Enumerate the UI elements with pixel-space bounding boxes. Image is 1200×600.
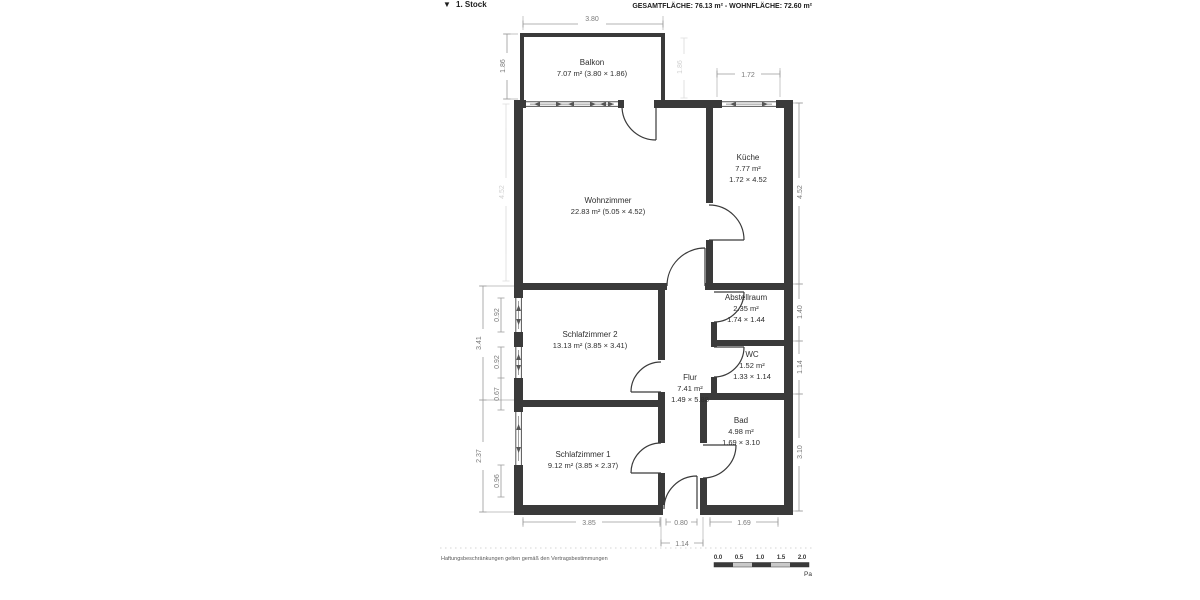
floor-title: 1. Stock: [456, 0, 487, 9]
room-flur: Flur 7.41 m² 1.49 × 5.88: [671, 373, 709, 404]
page-hint: Pa: [804, 571, 812, 578]
door-kueche: [709, 205, 744, 240]
scale-seg-1: [714, 563, 733, 568]
room-abstellraum-dims: 1.74 × 1.44: [727, 315, 765, 324]
room-wc-area: 1.52 m²: [739, 361, 765, 370]
wall-balkon-top: [520, 33, 665, 37]
wall-bottom-right: [700, 505, 793, 515]
window-kueche: [722, 102, 776, 107]
dimensions: 3.80 1.72 1.86 1.86 4.52 3.41 2.37 0.92 …: [476, 16, 804, 548]
dim-left-sz2-outer: 3.41: [476, 336, 483, 350]
wall-balkon-right: [661, 33, 665, 100]
wall-balkon-left: [520, 33, 524, 100]
room-sz1-name: Schlafzimmer 1: [555, 450, 611, 459]
disclaimer-text: Haftungsbeschränkungen gelten gemäß den …: [441, 556, 608, 562]
room-sz2-name: Schlafzimmer 2: [562, 330, 618, 339]
wall-flur-left-mid: [658, 392, 665, 443]
dim-bottom-sz1: 3.85: [582, 520, 596, 527]
wall-sz-divider: [514, 400, 658, 407]
room-schlafzimmer2: Schlafzimmer 2 13.13 m² (3.85 × 3.41): [553, 330, 628, 350]
scale-seg-4: [771, 563, 790, 568]
dim-left-sz2-pier: 0.67: [494, 387, 501, 401]
wall-mid-horizontal-left: [514, 283, 667, 290]
room-wc: WC 1.52 m² 1.33 × 1.14: [733, 350, 771, 381]
room-wohnzimmer-name: Wohnzimmer: [585, 196, 632, 205]
room-wc-name: WC: [745, 350, 759, 359]
room-kueche-area: 7.77 m²: [735, 164, 761, 173]
doors: [622, 106, 744, 509]
room-balkon-name: Balkon: [580, 58, 604, 67]
dim-bottom-bad: 1.69: [737, 520, 751, 527]
door-flur-wohnzimmer: [667, 248, 705, 286]
room-kueche-dims: 1.72 × 4.52: [729, 175, 767, 184]
room-abstellraum: Abstellraum 2.35 m² 1.74 × 1.44: [725, 293, 768, 324]
window-sz1: [516, 412, 522, 465]
dim-right-balkon: 1.86: [677, 60, 684, 74]
wall-mid-horizontal-right: [705, 283, 793, 290]
dim-left-sz1-outer: 2.37: [476, 449, 483, 463]
room-wohnzimmer: Wohnzimmer 22.83 m² (5.05 × 4.52): [571, 196, 646, 216]
wall-top-post: [618, 100, 624, 108]
wall-top-left-corner: [514, 100, 526, 108]
header: ▼ 1. Stock GESAMTFLÄCHE: 76.13 m² - WOHN…: [443, 0, 813, 10]
dim-right-wc: 1.14: [797, 360, 804, 374]
dim-left-sz2-win1: 0.92: [494, 308, 501, 322]
wall-bad-left-upper: [700, 400, 707, 443]
dim-top-balkon: 3.80: [585, 16, 599, 23]
wall-flur-left-lower: [658, 473, 665, 505]
scale-seg-2: [733, 563, 752, 568]
wall-abst-wc-divider: [711, 340, 793, 346]
room-abstellraum-name: Abstellraum: [725, 293, 768, 302]
scale-label-1: 0.5: [735, 555, 744, 561]
scale-label-2: 1.0: [756, 555, 765, 561]
room-schlafzimmer1: Schlafzimmer 1 9.12 m² (3.85 × 2.37): [548, 450, 619, 470]
dim-bottom-door: 0.80: [674, 520, 688, 527]
wall-flur-left-upper: [658, 290, 665, 360]
room-bad-dims: 1.69 × 3.10: [722, 438, 760, 447]
area-summary: GESAMTFLÄCHE: 76.13 m² - WOHNFLÄCHE: 72.…: [632, 2, 812, 10]
wall-bottom-left: [514, 505, 663, 515]
scale-label-3: 1.5: [777, 555, 786, 561]
dim-top-kueche: 1.72: [741, 72, 755, 79]
dim-right-abstellraum: 1.40: [797, 305, 804, 319]
room-kueche: Küche 7.77 m² 1.72 × 4.52: [729, 153, 767, 184]
room-wc-dims: 1.33 × 1.14: [733, 372, 771, 381]
dim-left-wz-group: 4.52: [499, 104, 510, 281]
window-sz2-1: [516, 298, 522, 332]
door-bad: [703, 445, 736, 478]
room-kueche-name: Küche: [737, 153, 760, 162]
door-balkon: [622, 106, 656, 140]
dim-left-sz1-win: 0.96: [494, 474, 501, 488]
dim-right-balkon-group: 1.86: [677, 38, 688, 98]
floorplan-canvas: ▼ 1. Stock GESAMTFLÄCHE: 76.13 m² - WOHN…: [0, 0, 1200, 600]
room-bad-name: Bad: [734, 416, 748, 425]
room-bad: Bad 4.98 m² 1.69 × 3.10: [722, 416, 760, 447]
wall-wz-kueche-lower: [706, 240, 713, 285]
scale-seg-3: [752, 563, 771, 568]
window-sz2-2: [516, 347, 522, 378]
wall-wc-bad-divider: [700, 393, 793, 400]
wall-left-upper: [514, 100, 523, 298]
wall-kueche-top-left: [706, 100, 722, 108]
dim-right-kueche: 4.52: [797, 185, 804, 199]
room-balkon: Balkon 7.07 m² (3.80 × 1.86): [557, 58, 628, 78]
door-entrance: [664, 476, 697, 509]
dim-left-balkon: 1.86: [500, 59, 507, 73]
footer: Haftungsbeschränkungen gelten gemäß den …: [440, 548, 812, 578]
room-sz1-size: 9.12 m² (3.85 × 2.37): [548, 461, 619, 470]
dim-right-bad: 3.10: [797, 445, 804, 459]
scale-bar: 0.0 0.5 1.0 1.5 2.0: [714, 555, 809, 567]
scale-label-4: 2.0: [798, 555, 807, 561]
room-sz2-size: 13.13 m² (3.85 × 3.41): [553, 341, 628, 350]
wall-flur-right-b: [711, 377, 717, 393]
room-flur-area: 7.41 m²: [677, 384, 703, 393]
room-balkon-size: 7.07 m² (3.80 × 1.86): [557, 69, 628, 78]
room-flur-dims: 1.49 × 5.88: [671, 395, 709, 404]
room-flur-name: Flur: [683, 373, 697, 382]
wall-bad-left-lower: [700, 478, 707, 505]
scale-label-0: 0.0: [714, 555, 723, 561]
window-balkon-band: [526, 102, 618, 107]
wall-left-pier-mid: [514, 332, 523, 347]
wall-right: [784, 100, 793, 515]
room-abstellraum-area: 2.35 m²: [733, 304, 759, 313]
room-bad-area: 4.98 m²: [728, 427, 754, 436]
door-schlafzimmer2: [631, 362, 661, 392]
door-schlafzimmer1: [631, 443, 661, 473]
dim-bottom-flur: 1.14: [675, 541, 689, 548]
wall-top-right-of-door: [654, 100, 714, 108]
floor-marker-icon: ▼: [443, 0, 451, 9]
scale-seg-5: [790, 563, 809, 568]
dim-left-wohnzimmer: 4.52: [499, 185, 506, 199]
room-wohnzimmer-size: 22.83 m² (5.05 × 4.52): [571, 207, 646, 216]
wall-wz-kueche-upper: [706, 108, 713, 203]
dim-left-sz2-win2: 0.92: [494, 355, 501, 369]
